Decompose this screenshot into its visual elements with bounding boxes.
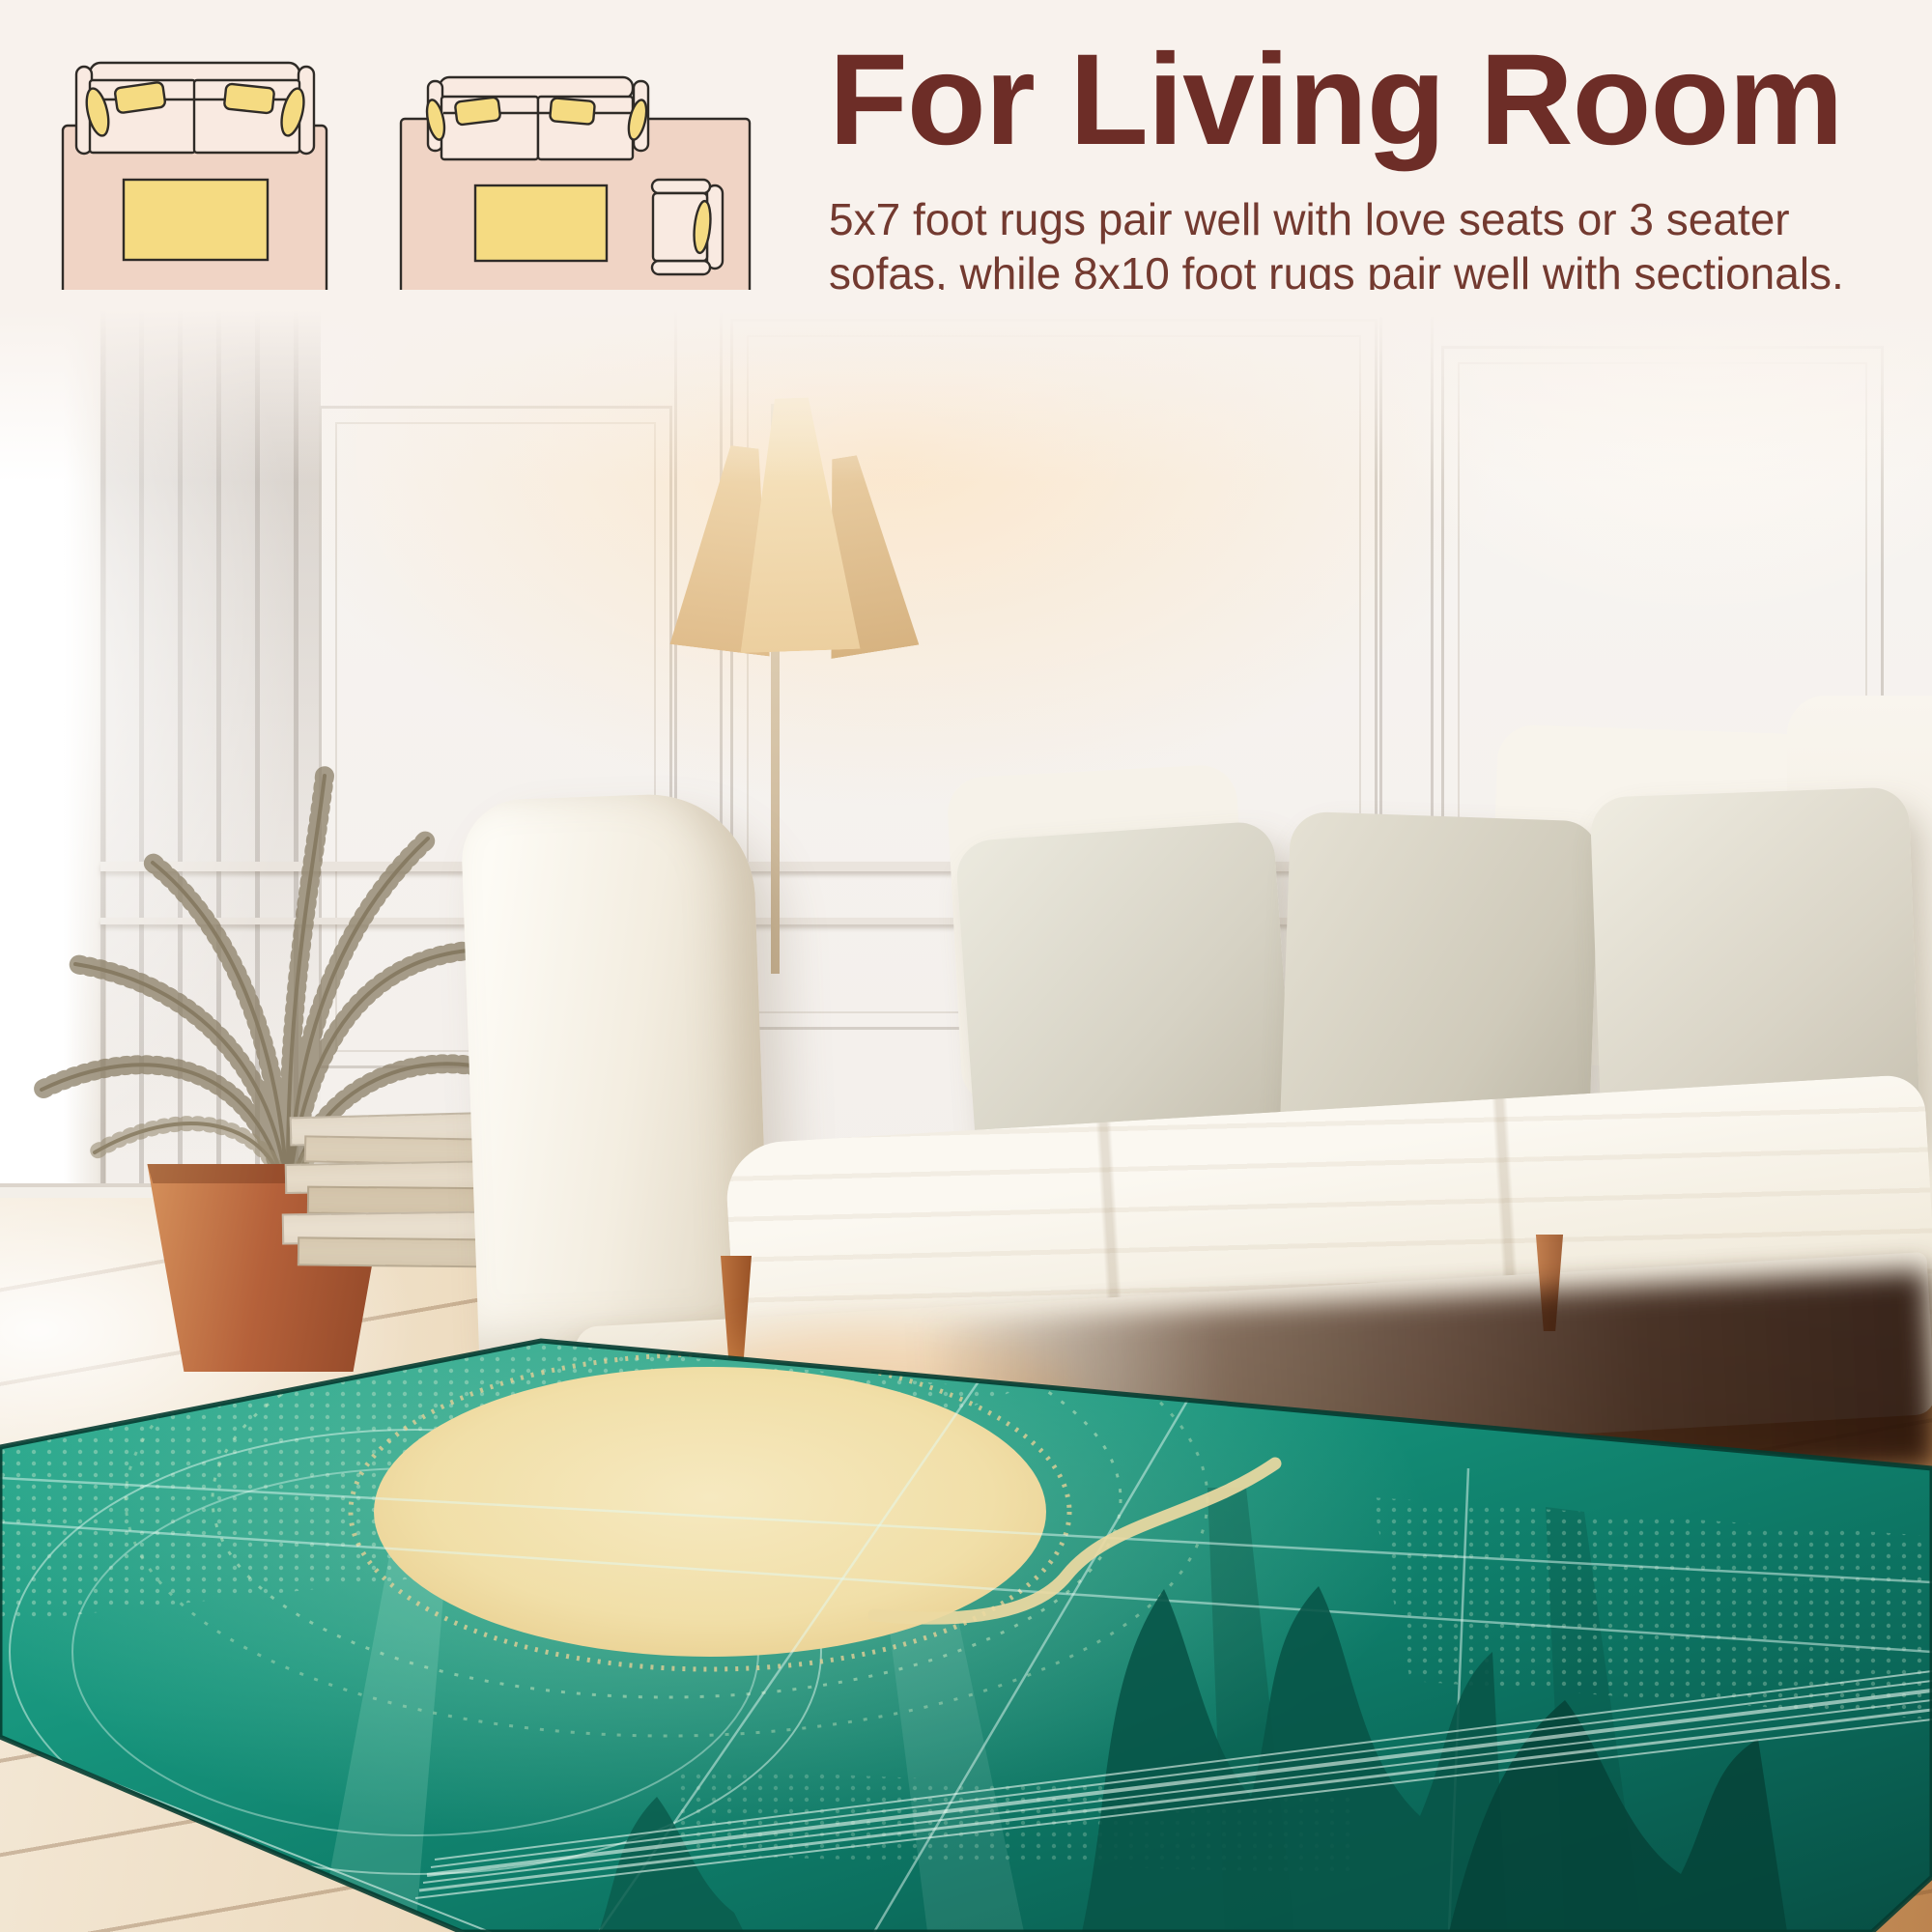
coffee-table-rect (475, 185, 607, 261)
loveseat-rug-layout-illustration (58, 53, 333, 328)
product-image: 5x7 (0, 0, 1932, 1932)
sofa-top-view (76, 63, 314, 154)
infographic-copy: For Living Room 5x7 foot rugs pair well … (829, 35, 1896, 300)
description-text: 5x7 foot rugs pair well with love seats … (829, 192, 1896, 300)
armchair-top-view (652, 180, 723, 274)
coffee-table-rect (124, 180, 268, 260)
photo-top-fade (0, 290, 1932, 483)
description-line-1: 5x7 foot rugs pair well with love seats … (829, 192, 1896, 246)
living-room-photo (0, 290, 1932, 1932)
teal-sun-art-rug (0, 1333, 1932, 1932)
page-title: For Living Room (829, 35, 1896, 167)
